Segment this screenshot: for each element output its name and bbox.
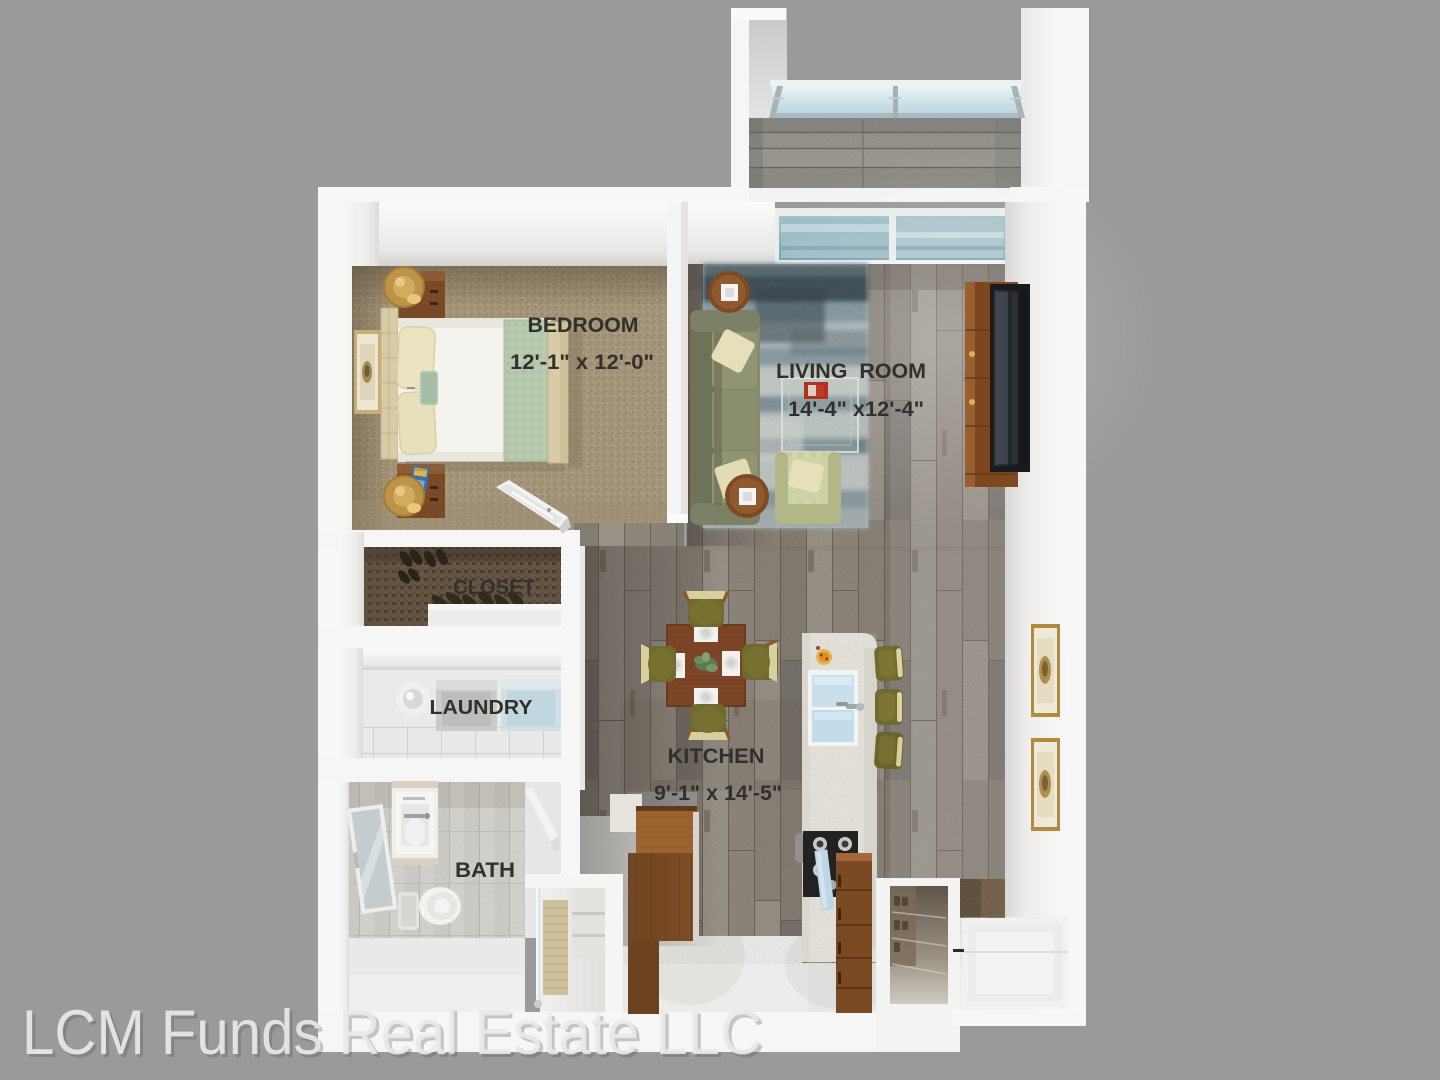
svg-text:12'-1" x 12'-0": 12'-1" x 12'-0" (510, 351, 654, 374)
svg-text:LAUNDRY: LAUNDRY (430, 697, 534, 719)
svg-text:BATH: BATH (455, 859, 515, 882)
svg-text:BEDROOM: BEDROOM (528, 314, 639, 337)
svg-text:9'-1" x 14'-5": 9'-1" x 14'-5" (654, 782, 782, 805)
svg-text:LIVING ROOM: LIVING ROOM (776, 360, 926, 383)
svg-text:CLOSET: CLOSET (453, 577, 535, 599)
svg-text:14'-4" x12'-4": 14'-4" x12'-4" (788, 398, 924, 421)
svg-text:KITCHEN: KITCHEN (668, 745, 765, 768)
svg-text:LCM Funds Real Estate LLC: LCM Funds Real Estate LLC (22, 998, 762, 1068)
